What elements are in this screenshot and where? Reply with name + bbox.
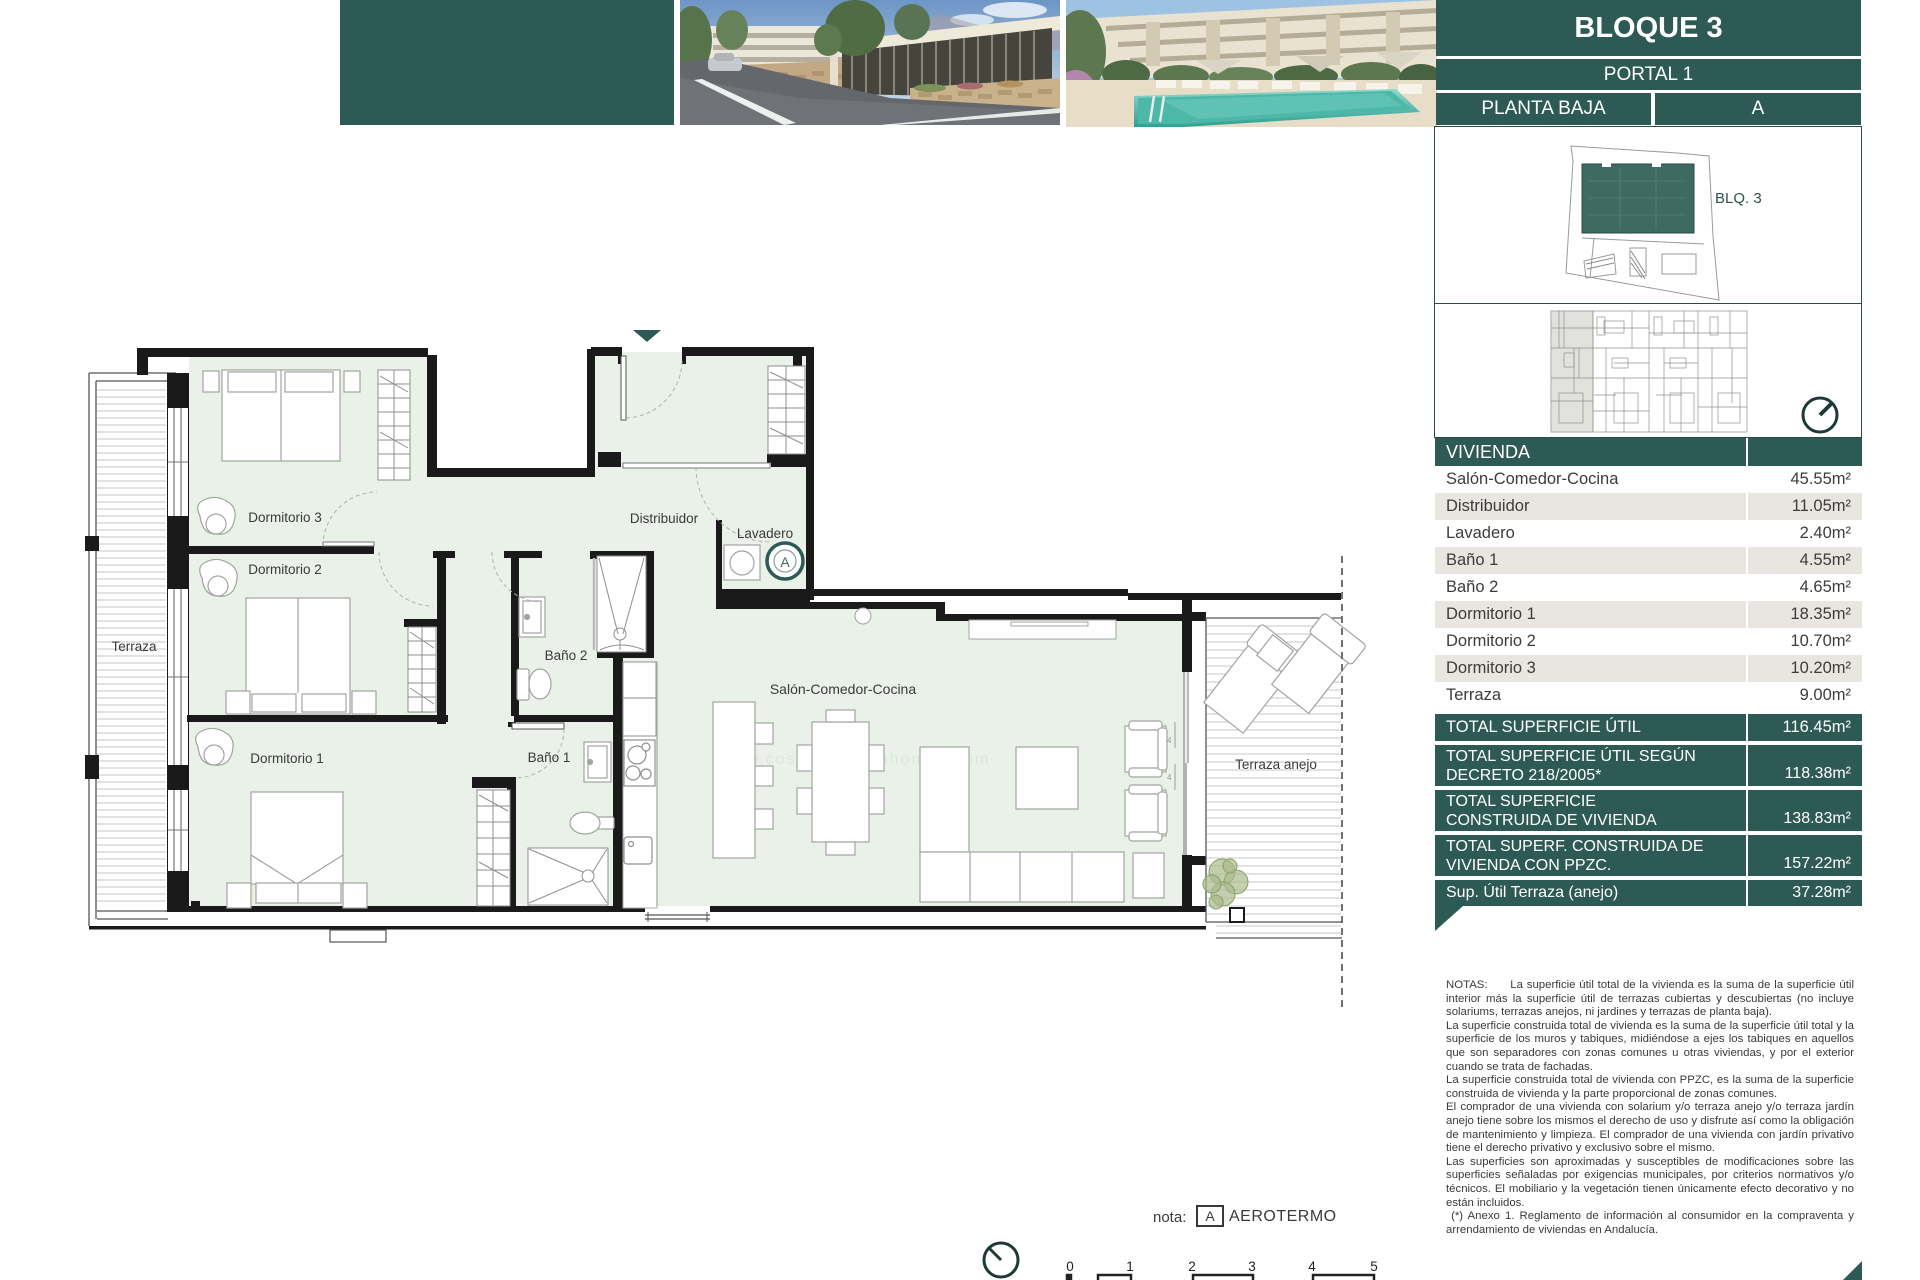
svg-text:Lavadero: Lavadero (737, 526, 793, 541)
svg-text:0: 0 (1066, 1259, 1074, 1274)
svg-text:1: 1 (1126, 1259, 1134, 1274)
svg-text:Baño 1: Baño 1 (528, 750, 571, 765)
svg-text:Salón-Comedor-Cocina: Salón-Comedor-Cocina (770, 681, 917, 697)
svg-text:2: 2 (1188, 1259, 1196, 1274)
svg-text:nota:: nota: (1153, 1209, 1186, 1226)
svg-text:Dormitorio 1: Dormitorio 1 (250, 751, 324, 766)
svg-text:Dormitorio 2: Dormitorio 2 (248, 562, 322, 577)
svg-text:AEROTERMO: AEROTERMO (1229, 1208, 1337, 1225)
svg-text:A: A (1205, 1208, 1215, 1224)
svg-text:Terraza: Terraza (111, 639, 157, 654)
svg-text:Dormitorio 3: Dormitorio 3 (248, 510, 322, 525)
svg-text:A: A (780, 554, 790, 570)
svg-text:4: 4 (1167, 773, 1172, 782)
svg-text:Baño 2: Baño 2 (545, 648, 588, 663)
svg-text:4: 4 (1167, 736, 1172, 745)
svg-text:5: 5 (1370, 1259, 1378, 1274)
svg-text:3: 3 (1248, 1259, 1256, 1274)
svg-text:Distribuidor: Distribuidor (630, 511, 699, 526)
svg-text:Terraza anejo: Terraza anejo (1235, 757, 1317, 772)
svg-text:4: 4 (1308, 1259, 1316, 1274)
